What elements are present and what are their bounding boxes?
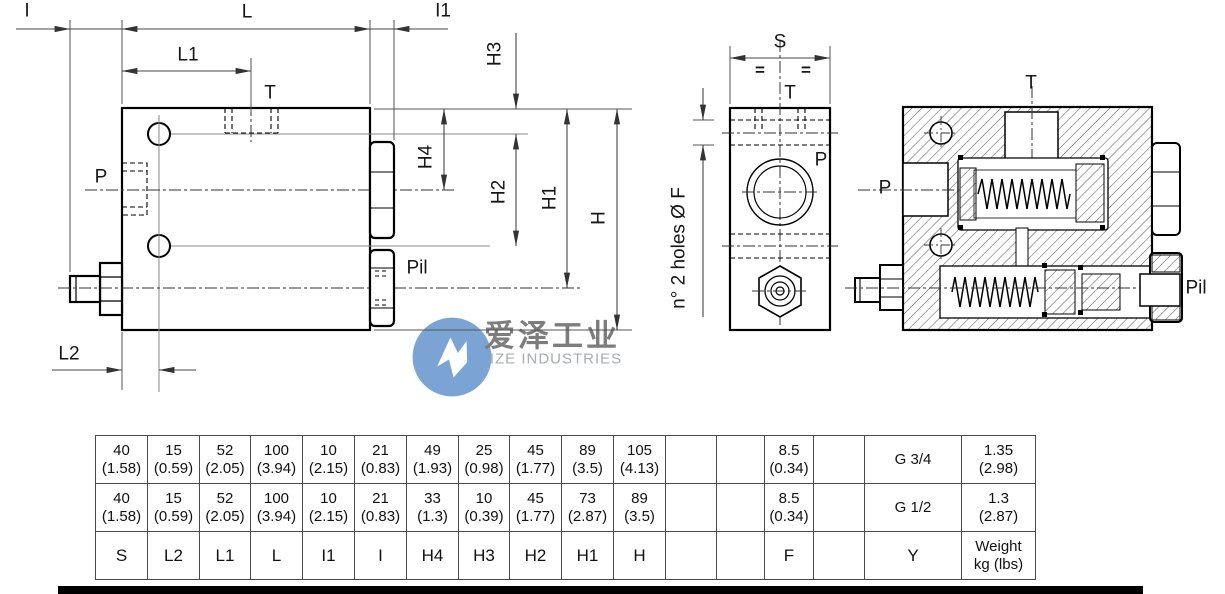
dim-label-s: S — [774, 33, 787, 52]
table-cell — [814, 484, 865, 532]
port-label-t-front: T — [264, 84, 276, 103]
table-cell: 10(2.15) — [303, 436, 355, 484]
bottom-rule — [58, 586, 1143, 594]
table-cell: 33(1.3) — [407, 484, 459, 532]
table-cell: 73(2.87) — [562, 484, 614, 532]
table-cell: 89(3.5) — [562, 436, 614, 484]
dim-label-l: L — [242, 3, 253, 22]
table-row: 40(1.58)15(0.59)52(2.05)100(3.94)10(2.15… — [96, 484, 1036, 532]
table-cell: F — [765, 532, 814, 580]
dimensions-table: 40(1.58)15(0.59)52(2.05)100(3.94)10(2.15… — [95, 435, 1036, 580]
table-cell: 25(0.98) — [459, 436, 510, 484]
table-cell: G 3/4 — [865, 436, 962, 484]
table-cell: 100(3.94) — [251, 484, 303, 532]
table-cell: 45(1.77) — [510, 436, 562, 484]
dim-label-l2: L2 — [58, 345, 79, 364]
equal-mark-left: = — [755, 62, 765, 79]
table-cell: S — [96, 532, 148, 580]
table-cell: 52(2.05) — [200, 484, 251, 532]
dimensions-table-body: 40(1.58)15(0.59)52(2.05)100(3.94)10(2.15… — [96, 436, 1036, 580]
table-cell: H2 — [510, 532, 562, 580]
table-cell — [666, 532, 717, 580]
port-label-p-section: P — [879, 179, 892, 198]
table-row: 40(1.58)15(0.59)52(2.05)100(3.94)10(2.15… — [96, 436, 1036, 484]
equal-mark-right: = — [801, 62, 811, 79]
table-cell: 8.5(0.34) — [765, 484, 814, 532]
table-cell: H3 — [459, 532, 510, 580]
dim-label-l1: L1 — [177, 46, 198, 65]
table-cell: I — [355, 532, 407, 580]
table-cell — [717, 484, 765, 532]
table-cell: 89(3.5) — [614, 484, 666, 532]
table-cell: 21(0.83) — [355, 436, 407, 484]
table-cell — [814, 532, 865, 580]
port-label-p-side: P — [815, 151, 828, 170]
table-cell: 40(1.58) — [96, 436, 148, 484]
table-cell: 45(1.77) — [510, 484, 562, 532]
table-row: SL2L1LI1IH4H3H2H1HFYWeightkg (lbs) — [96, 532, 1036, 580]
port-label-p-front: P — [95, 168, 108, 187]
table-cell: 15(0.59) — [148, 436, 200, 484]
table-cell — [717, 436, 765, 484]
table-cell: G 1/2 — [865, 484, 962, 532]
table-cell: L2 — [148, 532, 200, 580]
table-cell: Weightkg (lbs) — [962, 532, 1036, 580]
table-cell — [717, 532, 765, 580]
table-cell: 105(4.13) — [614, 436, 666, 484]
section-view — [845, 86, 1182, 330]
table-cell: 49(1.93) — [407, 436, 459, 484]
table-cell: 10(2.15) — [303, 484, 355, 532]
table-cell: 15(0.59) — [148, 484, 200, 532]
dim-label-i1: I1 — [435, 2, 451, 21]
table-cell: H1 — [562, 532, 614, 580]
table-cell: 1.35(2.98) — [962, 436, 1036, 484]
dim-label-h1: H1 — [541, 186, 560, 210]
table-cell: H4 — [407, 532, 459, 580]
table-cell — [666, 436, 717, 484]
dim-label-h: H — [590, 211, 609, 225]
port-label-pil-front: Pil — [406, 259, 427, 278]
table-cell: Y — [865, 532, 962, 580]
datasheet-page: 爱泽工业 IZE INDUSTRIES — [0, 0, 1225, 594]
table-cell: 8.5(0.34) — [765, 436, 814, 484]
table-cell — [666, 484, 717, 532]
table-cell: 100(3.94) — [251, 436, 303, 484]
table-cell: 21(0.83) — [355, 484, 407, 532]
port-label-pil-section: Pil — [1185, 279, 1206, 298]
table-cell: 10(0.39) — [459, 484, 510, 532]
holes-note-label: n° 2 holes Ø F — [670, 187, 689, 309]
dim-label-h3: H3 — [486, 42, 505, 66]
table-cell: L — [251, 532, 303, 580]
table-cell: H — [614, 532, 666, 580]
port-label-t-section: T — [1025, 74, 1037, 93]
table-cell: I1 — [303, 532, 355, 580]
table-cell: 40(1.58) — [96, 484, 148, 532]
port-label-t-side: T — [784, 84, 796, 103]
side-view — [693, 40, 838, 330]
dim-label-i: I — [24, 2, 29, 21]
dim-label-h2: H2 — [490, 180, 509, 204]
table-cell: L1 — [200, 532, 251, 580]
table-cell: 52(2.05) — [200, 436, 251, 484]
dim-label-h4: H4 — [417, 145, 436, 169]
table-cell: 1.3(2.87) — [962, 484, 1036, 532]
table-cell — [814, 436, 865, 484]
